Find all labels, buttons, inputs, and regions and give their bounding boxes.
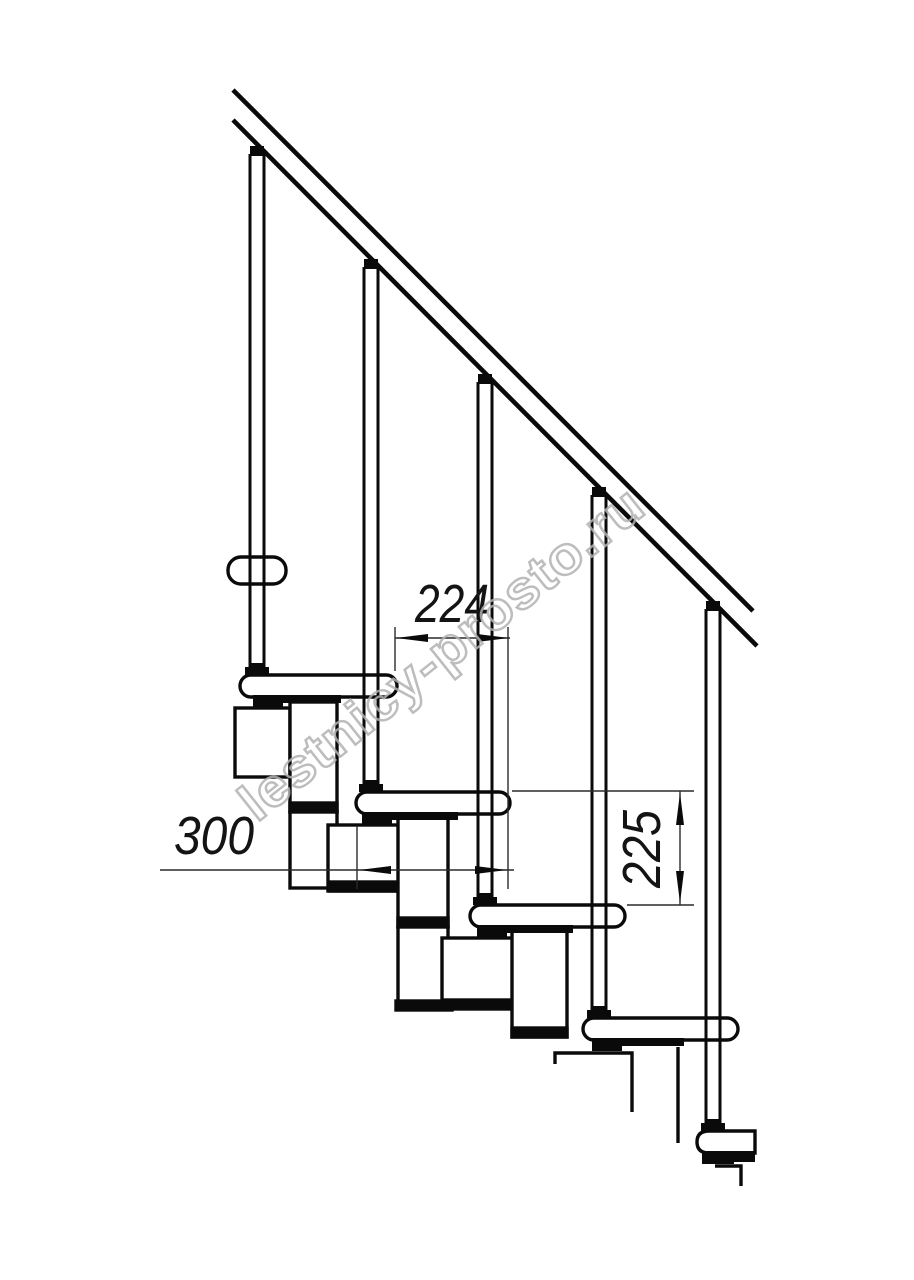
tread-4 [583,1018,738,1040]
staircase-drawing: 224 300 225 lestnicy-prosto.ru [0,0,914,1280]
tread-5 [697,1131,755,1153]
module-under-step4-partial [555,1047,678,1143]
dim-label-depth: 300 [174,806,254,866]
handrail-bracket [228,557,286,584]
module-under-step5-partial [715,1166,741,1186]
tread-2 [356,792,510,814]
handrail [233,90,757,646]
drawing-svg: 224 300 225 lestnicy-prosto.ru [0,0,914,1280]
dim-label-rise: 225 [612,809,672,889]
baluster-1 [250,154,264,669]
tread-3 [470,905,625,927]
baluster-5 [706,609,720,1125]
handrail-bottom-line [233,120,757,646]
baluster-4 [592,495,606,1012]
